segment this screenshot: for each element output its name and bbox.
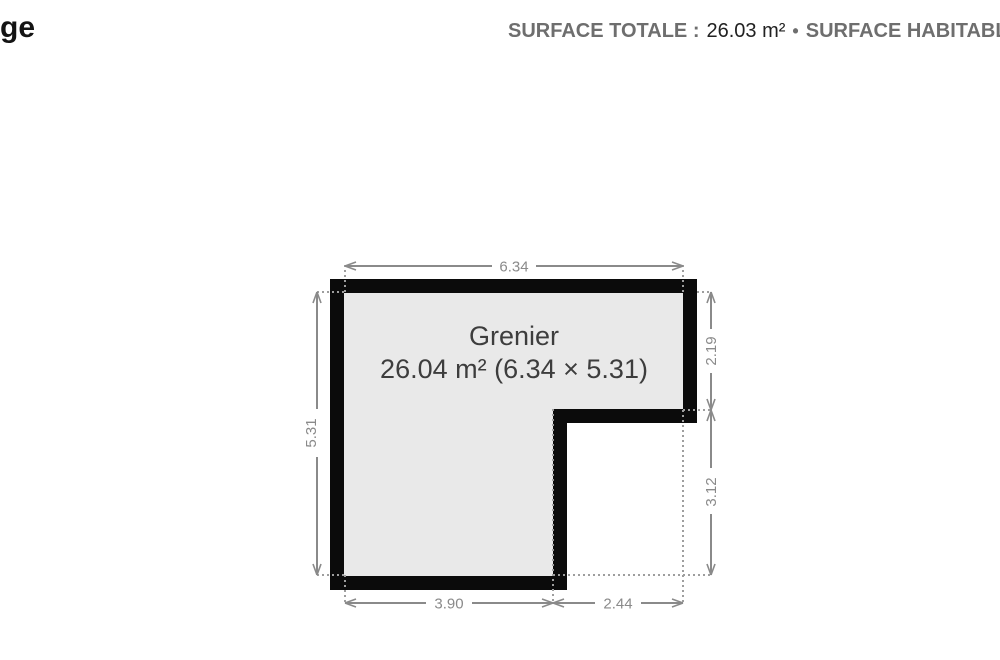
dimension-top-label: 6.34 <box>499 259 528 276</box>
dimension-right-lower-label: 3.12 <box>703 477 720 506</box>
floor-plan: 6.34 5.31 2.19 3.12 3.90 2.44 <box>0 0 1000 660</box>
dimension-bottom-left-label: 3.90 <box>434 596 463 613</box>
room-name: Grenier <box>469 321 559 351</box>
dimension-top: 6.34 <box>345 259 683 276</box>
dimension-right-upper-label: 2.19 <box>703 336 720 365</box>
dimension-left-label: 5.31 <box>303 418 320 447</box>
dimension-bottom-left: 3.90 <box>345 596 553 613</box>
dimension-bottom-right-label: 2.44 <box>603 596 632 613</box>
dimension-bottom-right: 2.44 <box>553 596 683 613</box>
dimension-right-lower: 3.12 <box>703 410 720 575</box>
room-area: 26.04 m² (6.34 × 5.31) <box>380 354 648 384</box>
dimension-left: 5.31 <box>303 292 321 575</box>
dimension-right-upper: 2.19 <box>703 292 720 410</box>
